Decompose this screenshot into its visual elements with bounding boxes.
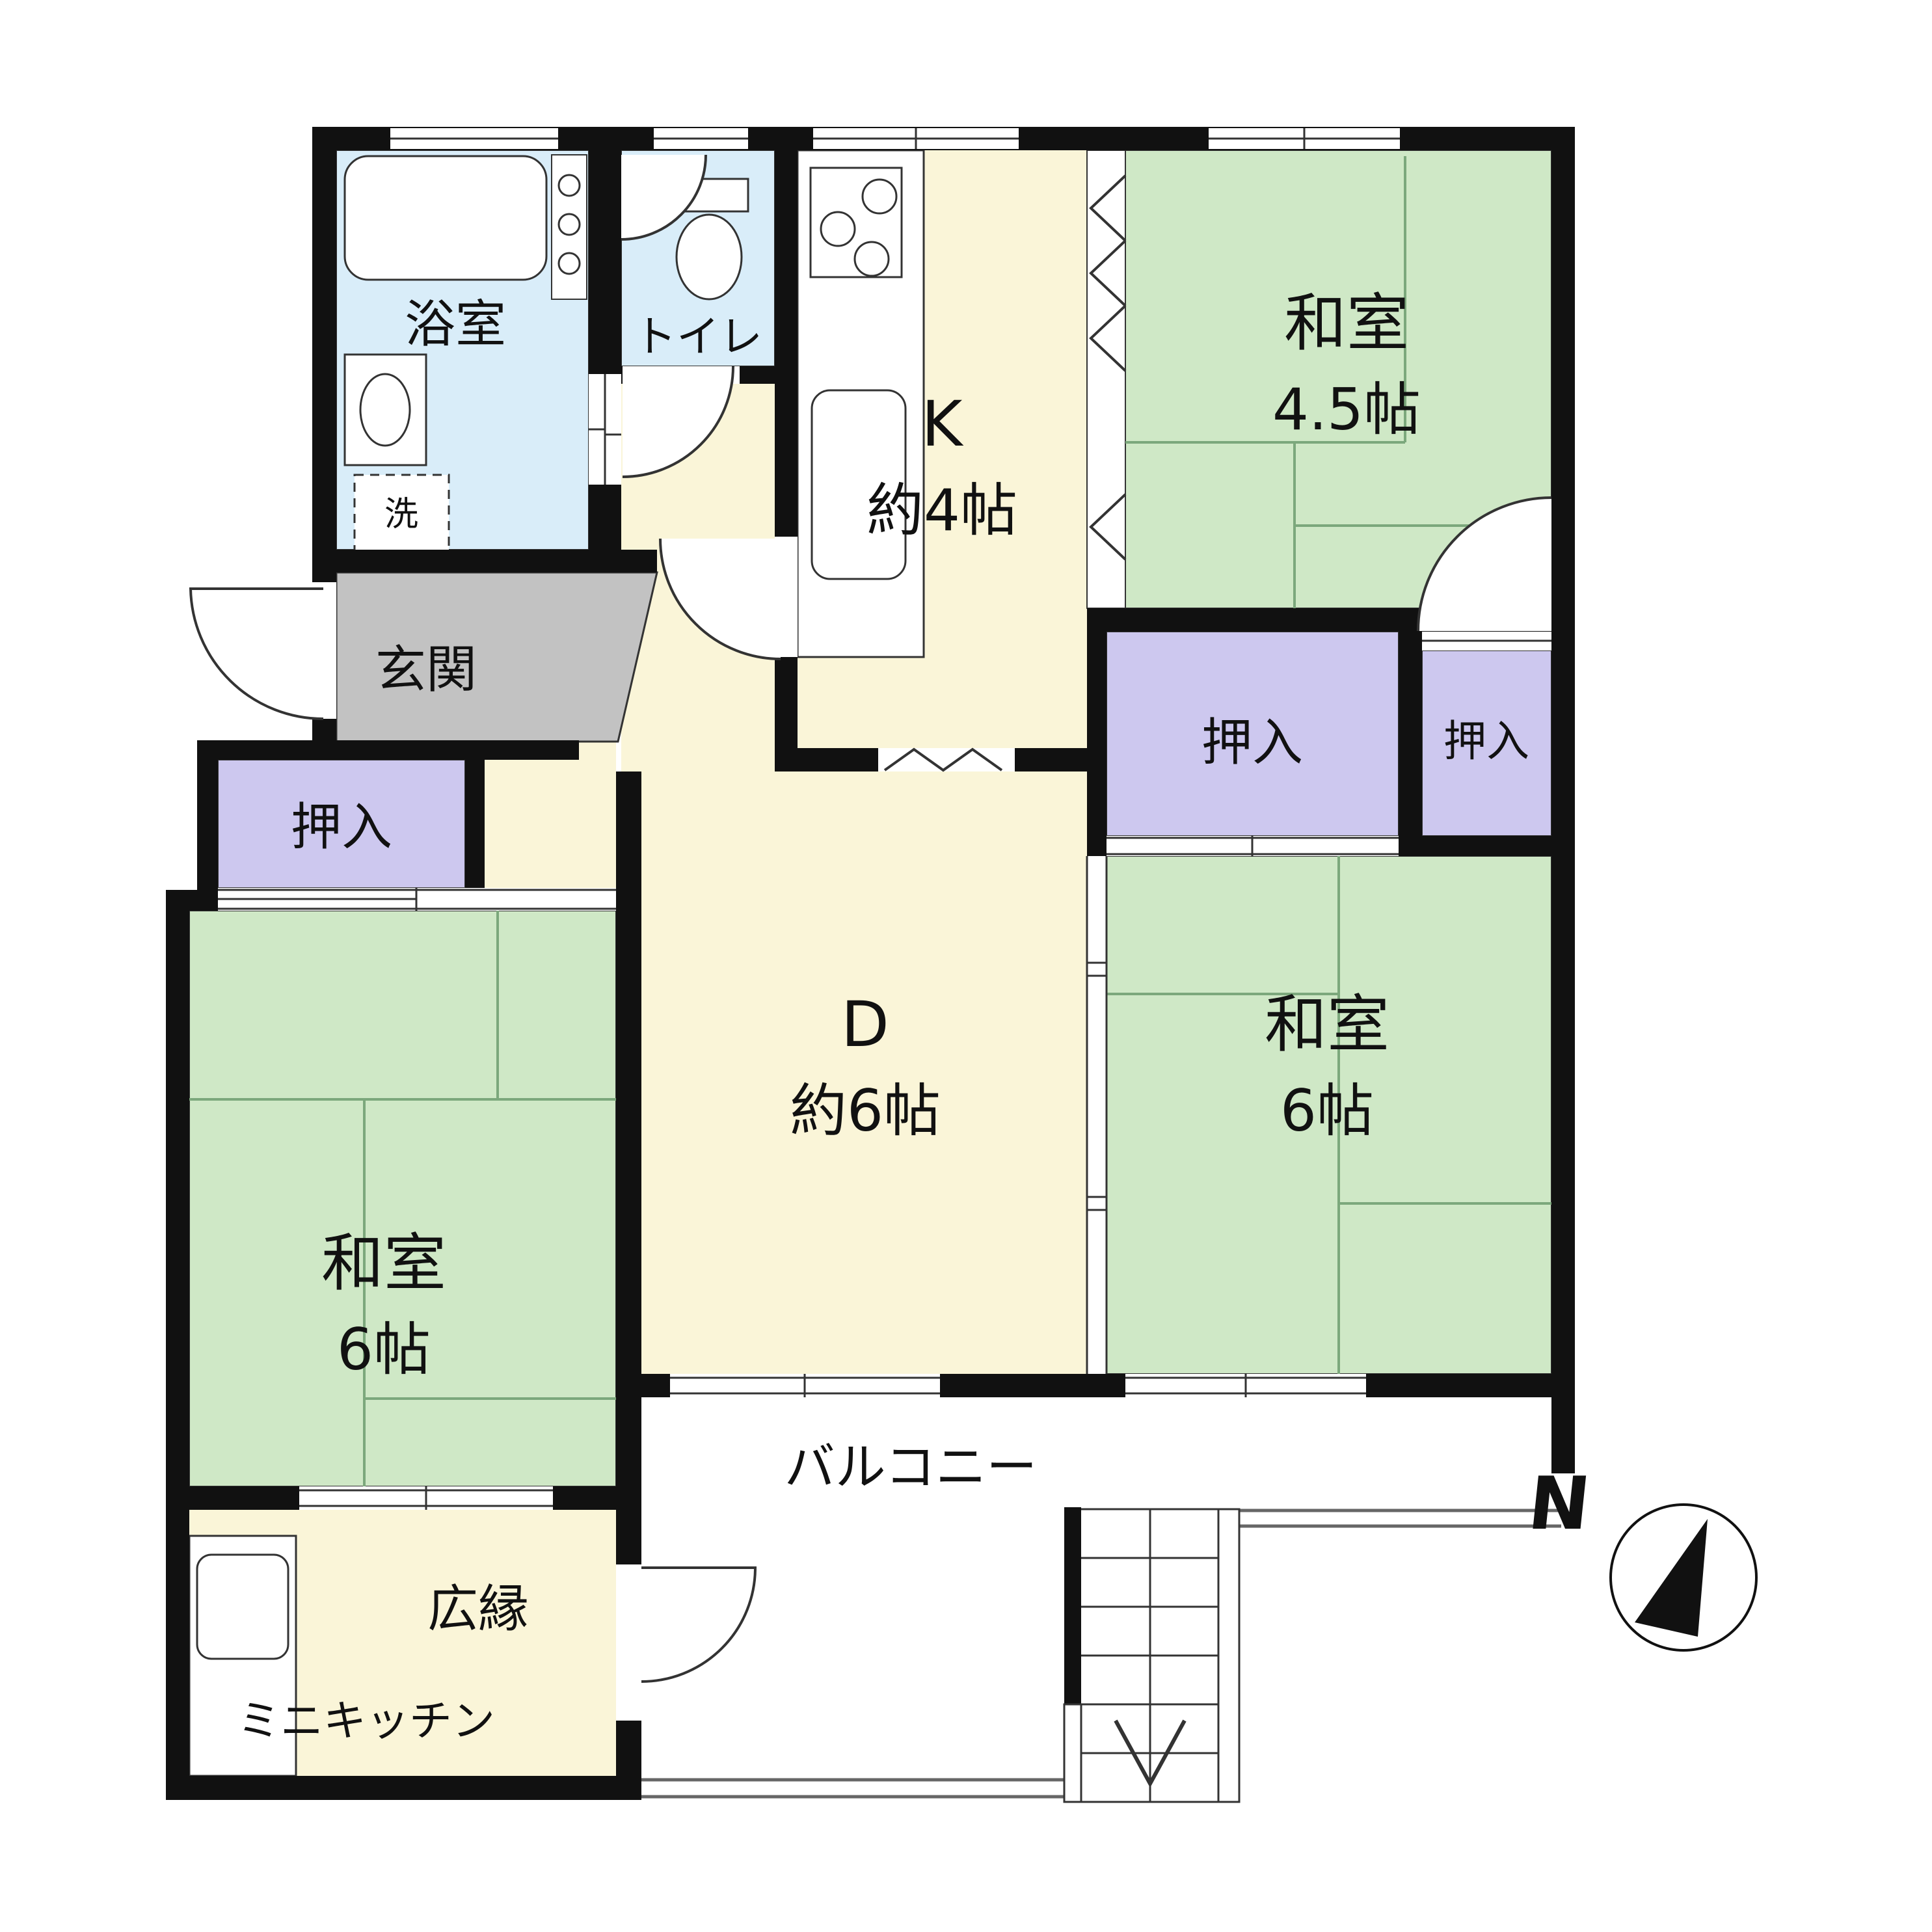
toilet-label: トイレ: [634, 312, 762, 362]
wall-genkan-bottom: [197, 740, 579, 760]
mini-kitchen-label: ミニキッチン: [237, 1696, 495, 1746]
compass-needle-icon: [1635, 1519, 1708, 1637]
washbasin-bowl: [360, 374, 410, 446]
wall-closet-row-left: [1087, 632, 1107, 856]
washitsu-left-floor: [189, 911, 616, 1486]
bathtub: [345, 156, 546, 280]
wall-closet-corner-bottom: [1422, 836, 1551, 856]
wall-bath-bottom: [312, 550, 657, 572]
bath-counter: [552, 155, 587, 299]
closet-right-label: 押入: [1201, 714, 1303, 772]
washitsu-left-size: 6帖: [337, 1316, 431, 1383]
kitchen-size: 約4帖: [866, 477, 1017, 544]
compass-north-label: N: [1524, 1462, 1594, 1546]
kitchen-label: K: [922, 388, 964, 461]
stairs-wall: [1064, 1507, 1081, 1704]
stairs: [1064, 1507, 1239, 1802]
washitsu45-size: 4.5帖: [1272, 376, 1421, 443]
hiroen-balcony-door-arc: [641, 1568, 755, 1682]
wall-bath-toilet: [589, 150, 621, 572]
closet-left-label: 押入: [291, 798, 392, 857]
wall-closet-divider: [1399, 632, 1422, 856]
washitsu45-label: 和室: [1284, 287, 1409, 360]
washitsu-left-label: 和室: [321, 1227, 446, 1300]
wall-hiroen-bottom: [166, 1776, 641, 1800]
wall-bath-left: [312, 127, 336, 572]
entrance-door-arc: [191, 589, 323, 719]
stairs-jamb: [1064, 1704, 1081, 1802]
wall-right-outer: [1551, 127, 1575, 1473]
balcony-label: バルコニー: [785, 1438, 1037, 1497]
hiroen-label: 広縁: [427, 1580, 529, 1639]
hallway-lower-floor: [485, 740, 616, 911]
dining-label: D: [841, 988, 889, 1061]
laundry-label: 洗: [384, 495, 418, 534]
hiroen-balcony-door-gap: [616, 1564, 641, 1721]
dining-washitsu-sliding: [1087, 856, 1107, 1374]
washitsu-right-size: 6帖: [1280, 1077, 1374, 1144]
genkan-label: 玄関: [375, 641, 477, 699]
stairs-right-wall: [1218, 1509, 1239, 1802]
wall-closet-left-side: [197, 740, 218, 911]
bath-label: 浴室: [405, 295, 506, 354]
entrance-door-gap: [312, 582, 336, 719]
dining-size: 約6帖: [790, 1077, 941, 1144]
washitsu-right-label: 和室: [1265, 988, 1389, 1061]
floor-plan: N 浴室 洗 トイレ K 約4帖 和室 4.5帖 押入 押入 押入 D 約6帖 …: [0, 0, 1932, 1932]
mini-kitchen-sink: [197, 1555, 288, 1659]
closet-corner-label: 押入: [1443, 716, 1529, 766]
wall-left-outer: [166, 890, 189, 1800]
toilet-bowl-icon: [677, 215, 742, 299]
wall-closet-left-right: [465, 760, 485, 888]
partition-strip: [1087, 150, 1125, 608]
compass: N: [1524, 1462, 1756, 1650]
dining-floor: [641, 771, 1087, 1374]
balcony: [641, 1507, 1561, 1802]
